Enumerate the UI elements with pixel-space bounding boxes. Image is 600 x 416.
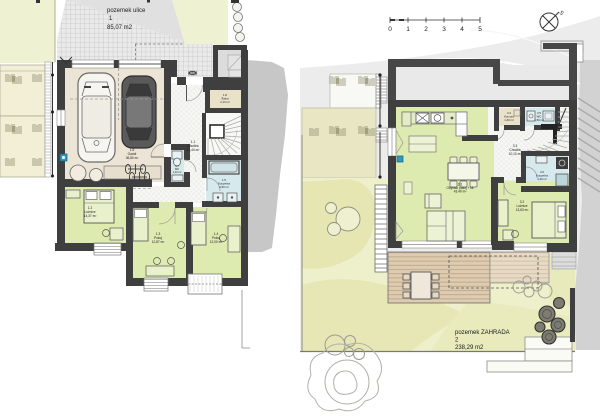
svg-text:10,10 m²: 10,10 m² (509, 152, 522, 156)
svg-text:43,49 m²: 43,49 m² (454, 190, 467, 194)
svg-text:12,00 m²: 12,00 m² (210, 240, 223, 244)
svg-text:2: 2 (424, 26, 428, 33)
svg-text:12,87 m²: 12,87 m² (152, 240, 165, 244)
svg-text:4,26 m²: 4,26 m² (537, 177, 547, 181)
svg-text:5: 5 (478, 26, 482, 33)
svg-text:3: 3 (442, 26, 446, 33)
svg-text:pozemek ZAHRADA: pozemek ZAHRADA (455, 330, 510, 336)
svg-text:13,44 m²: 13,44 m² (187, 148, 200, 152)
svg-text:2,13 m²: 2,13 m² (220, 100, 230, 104)
svg-text:pozemek ulice: pozemek ulice (107, 8, 146, 14)
svg-text:1,59 m²: 1,59 m² (534, 118, 544, 122)
svg-text:0: 0 (388, 26, 392, 33)
svg-text:4: 4 (460, 26, 464, 33)
svg-text:1,40 m²: 1,40 m² (504, 118, 514, 122)
svg-text:4,50 m²: 4,50 m² (219, 185, 229, 189)
svg-text:1,10 m²: 1,10 m² (173, 170, 182, 174)
svg-text:1: 1 (406, 26, 410, 33)
svg-text:36,80 m²: 36,80 m² (126, 156, 139, 160)
svg-text:14,37 m²: 14,37 m² (84, 214, 97, 218)
svg-text:13,63 m²: 13,63 m² (516, 208, 529, 212)
svg-text:85,07 m2: 85,07 m2 (107, 25, 133, 31)
svg-text:238,29 m2: 238,29 m2 (455, 345, 484, 351)
